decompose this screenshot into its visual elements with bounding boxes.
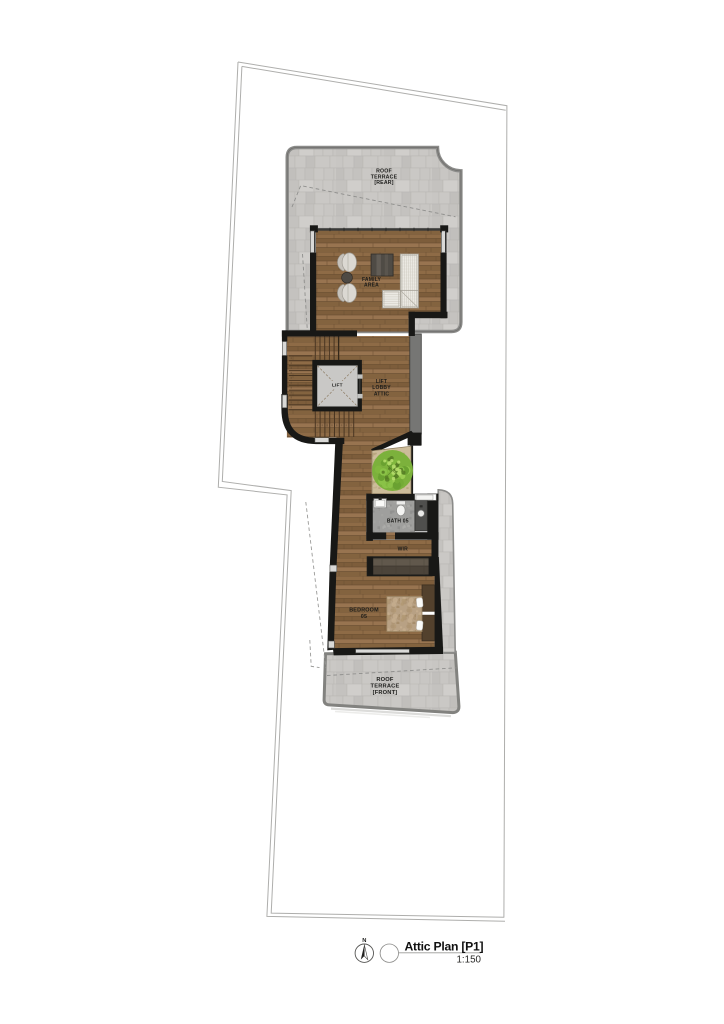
- svg-text:ATTIC: ATTIC: [374, 391, 390, 397]
- svg-text:BEDROOM: BEDROOM: [349, 608, 379, 614]
- svg-text:LOBBY: LOBBY: [372, 385, 391, 391]
- svg-text:[FRONT]: [FRONT]: [373, 690, 398, 696]
- svg-text:N: N: [362, 938, 366, 944]
- svg-text:TERRACE: TERRACE: [371, 684, 400, 690]
- svg-text:WIR: WIR: [398, 547, 409, 553]
- svg-text:LIFT: LIFT: [376, 379, 387, 385]
- svg-text:LIFT: LIFT: [332, 382, 343, 387]
- svg-text:AREA: AREA: [364, 283, 379, 289]
- svg-text:[REAR]: [REAR]: [374, 180, 393, 186]
- svg-text:1:150: 1:150: [456, 955, 481, 966]
- svg-text:ROOF: ROOF: [376, 677, 394, 683]
- svg-text:Attic Plan [P1]: Attic Plan [P1]: [405, 940, 484, 954]
- svg-text:05: 05: [361, 614, 367, 620]
- svg-text:BATH 05: BATH 05: [387, 518, 409, 524]
